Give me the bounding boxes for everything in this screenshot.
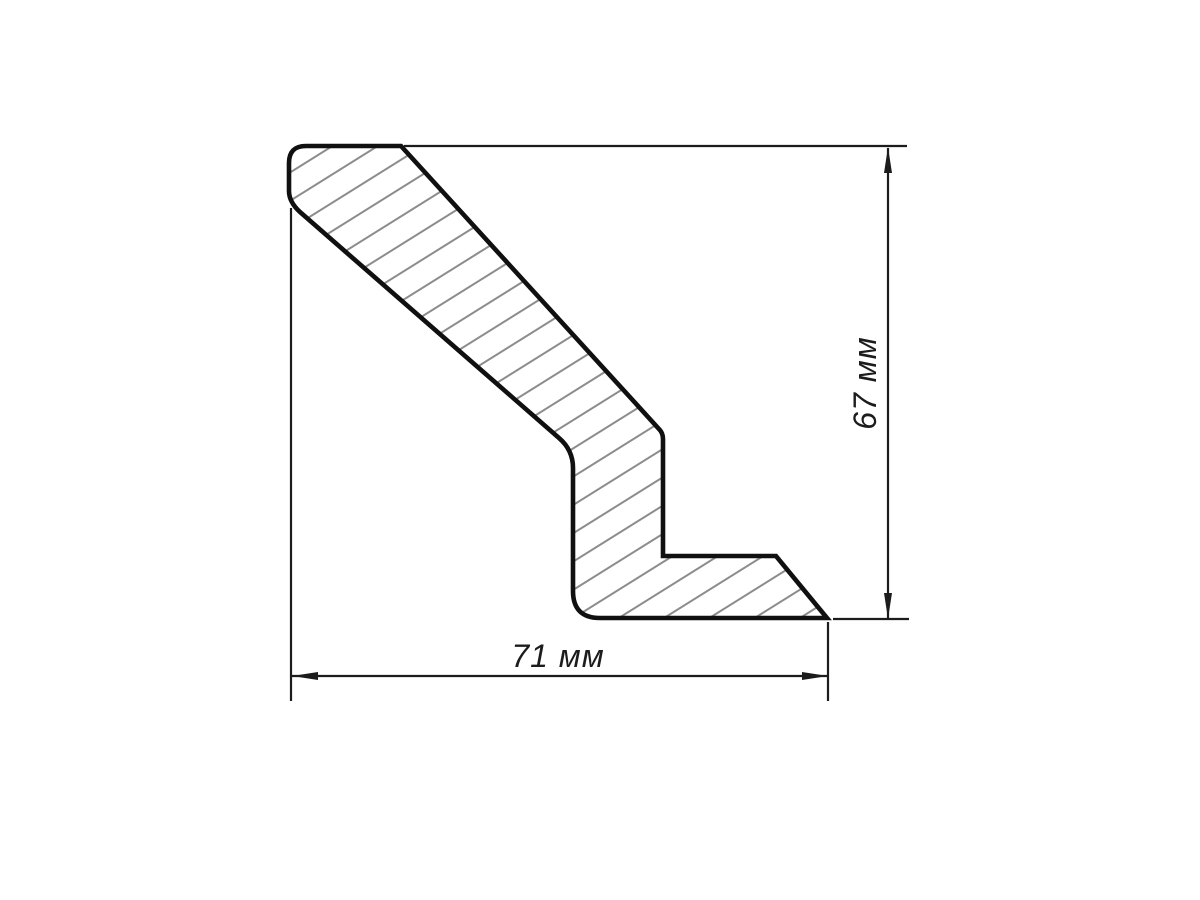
height-dimension: 67 мм — [847, 147, 892, 619]
arrow-left-icon — [292, 672, 318, 680]
profile-cross-section — [289, 146, 827, 618]
width-dimension-label: 71 мм — [511, 638, 604, 674]
width-dimension: 71 мм — [292, 638, 828, 680]
height-dimension-label: 67 мм — [847, 336, 883, 429]
arrow-right-icon — [802, 672, 828, 680]
profile-drawing: 67 мм 71 мм — [0, 0, 1200, 900]
arrow-up-icon — [884, 147, 892, 173]
arrow-down-icon — [884, 593, 892, 619]
drawing-canvas: 67 мм 71 мм — [0, 0, 1200, 900]
